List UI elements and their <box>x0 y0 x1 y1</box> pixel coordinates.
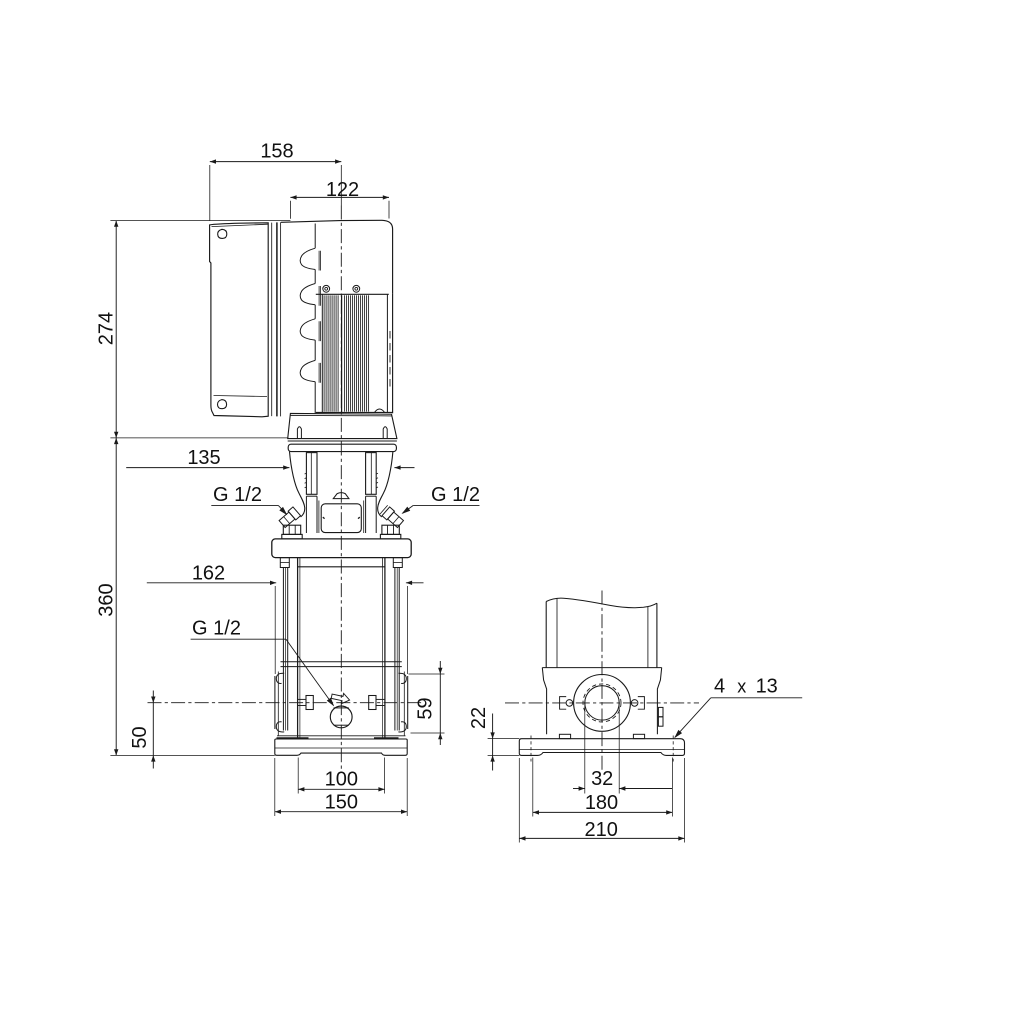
svg-text:G 1/2: G 1/2 <box>431 484 480 506</box>
svg-text:x: x <box>737 677 746 697</box>
svg-text:32: 32 <box>591 768 613 790</box>
svg-text:59: 59 <box>415 697 437 719</box>
svg-text:G 1/2: G 1/2 <box>192 618 241 640</box>
svg-text:50: 50 <box>129 726 151 748</box>
svg-text:150: 150 <box>325 791 358 813</box>
svg-text:4: 4 <box>714 676 725 698</box>
svg-text:158: 158 <box>260 141 293 163</box>
svg-text:210: 210 <box>585 819 618 841</box>
svg-text:360: 360 <box>95 583 117 616</box>
svg-text:100: 100 <box>325 768 358 790</box>
svg-text:22: 22 <box>468 707 490 729</box>
svg-text:274: 274 <box>95 312 117 345</box>
svg-text:162: 162 <box>192 562 225 584</box>
svg-text:13: 13 <box>756 676 778 698</box>
svg-text:G 1/2: G 1/2 <box>213 484 262 506</box>
svg-text:180: 180 <box>585 792 618 814</box>
svg-text:135: 135 <box>187 447 220 469</box>
